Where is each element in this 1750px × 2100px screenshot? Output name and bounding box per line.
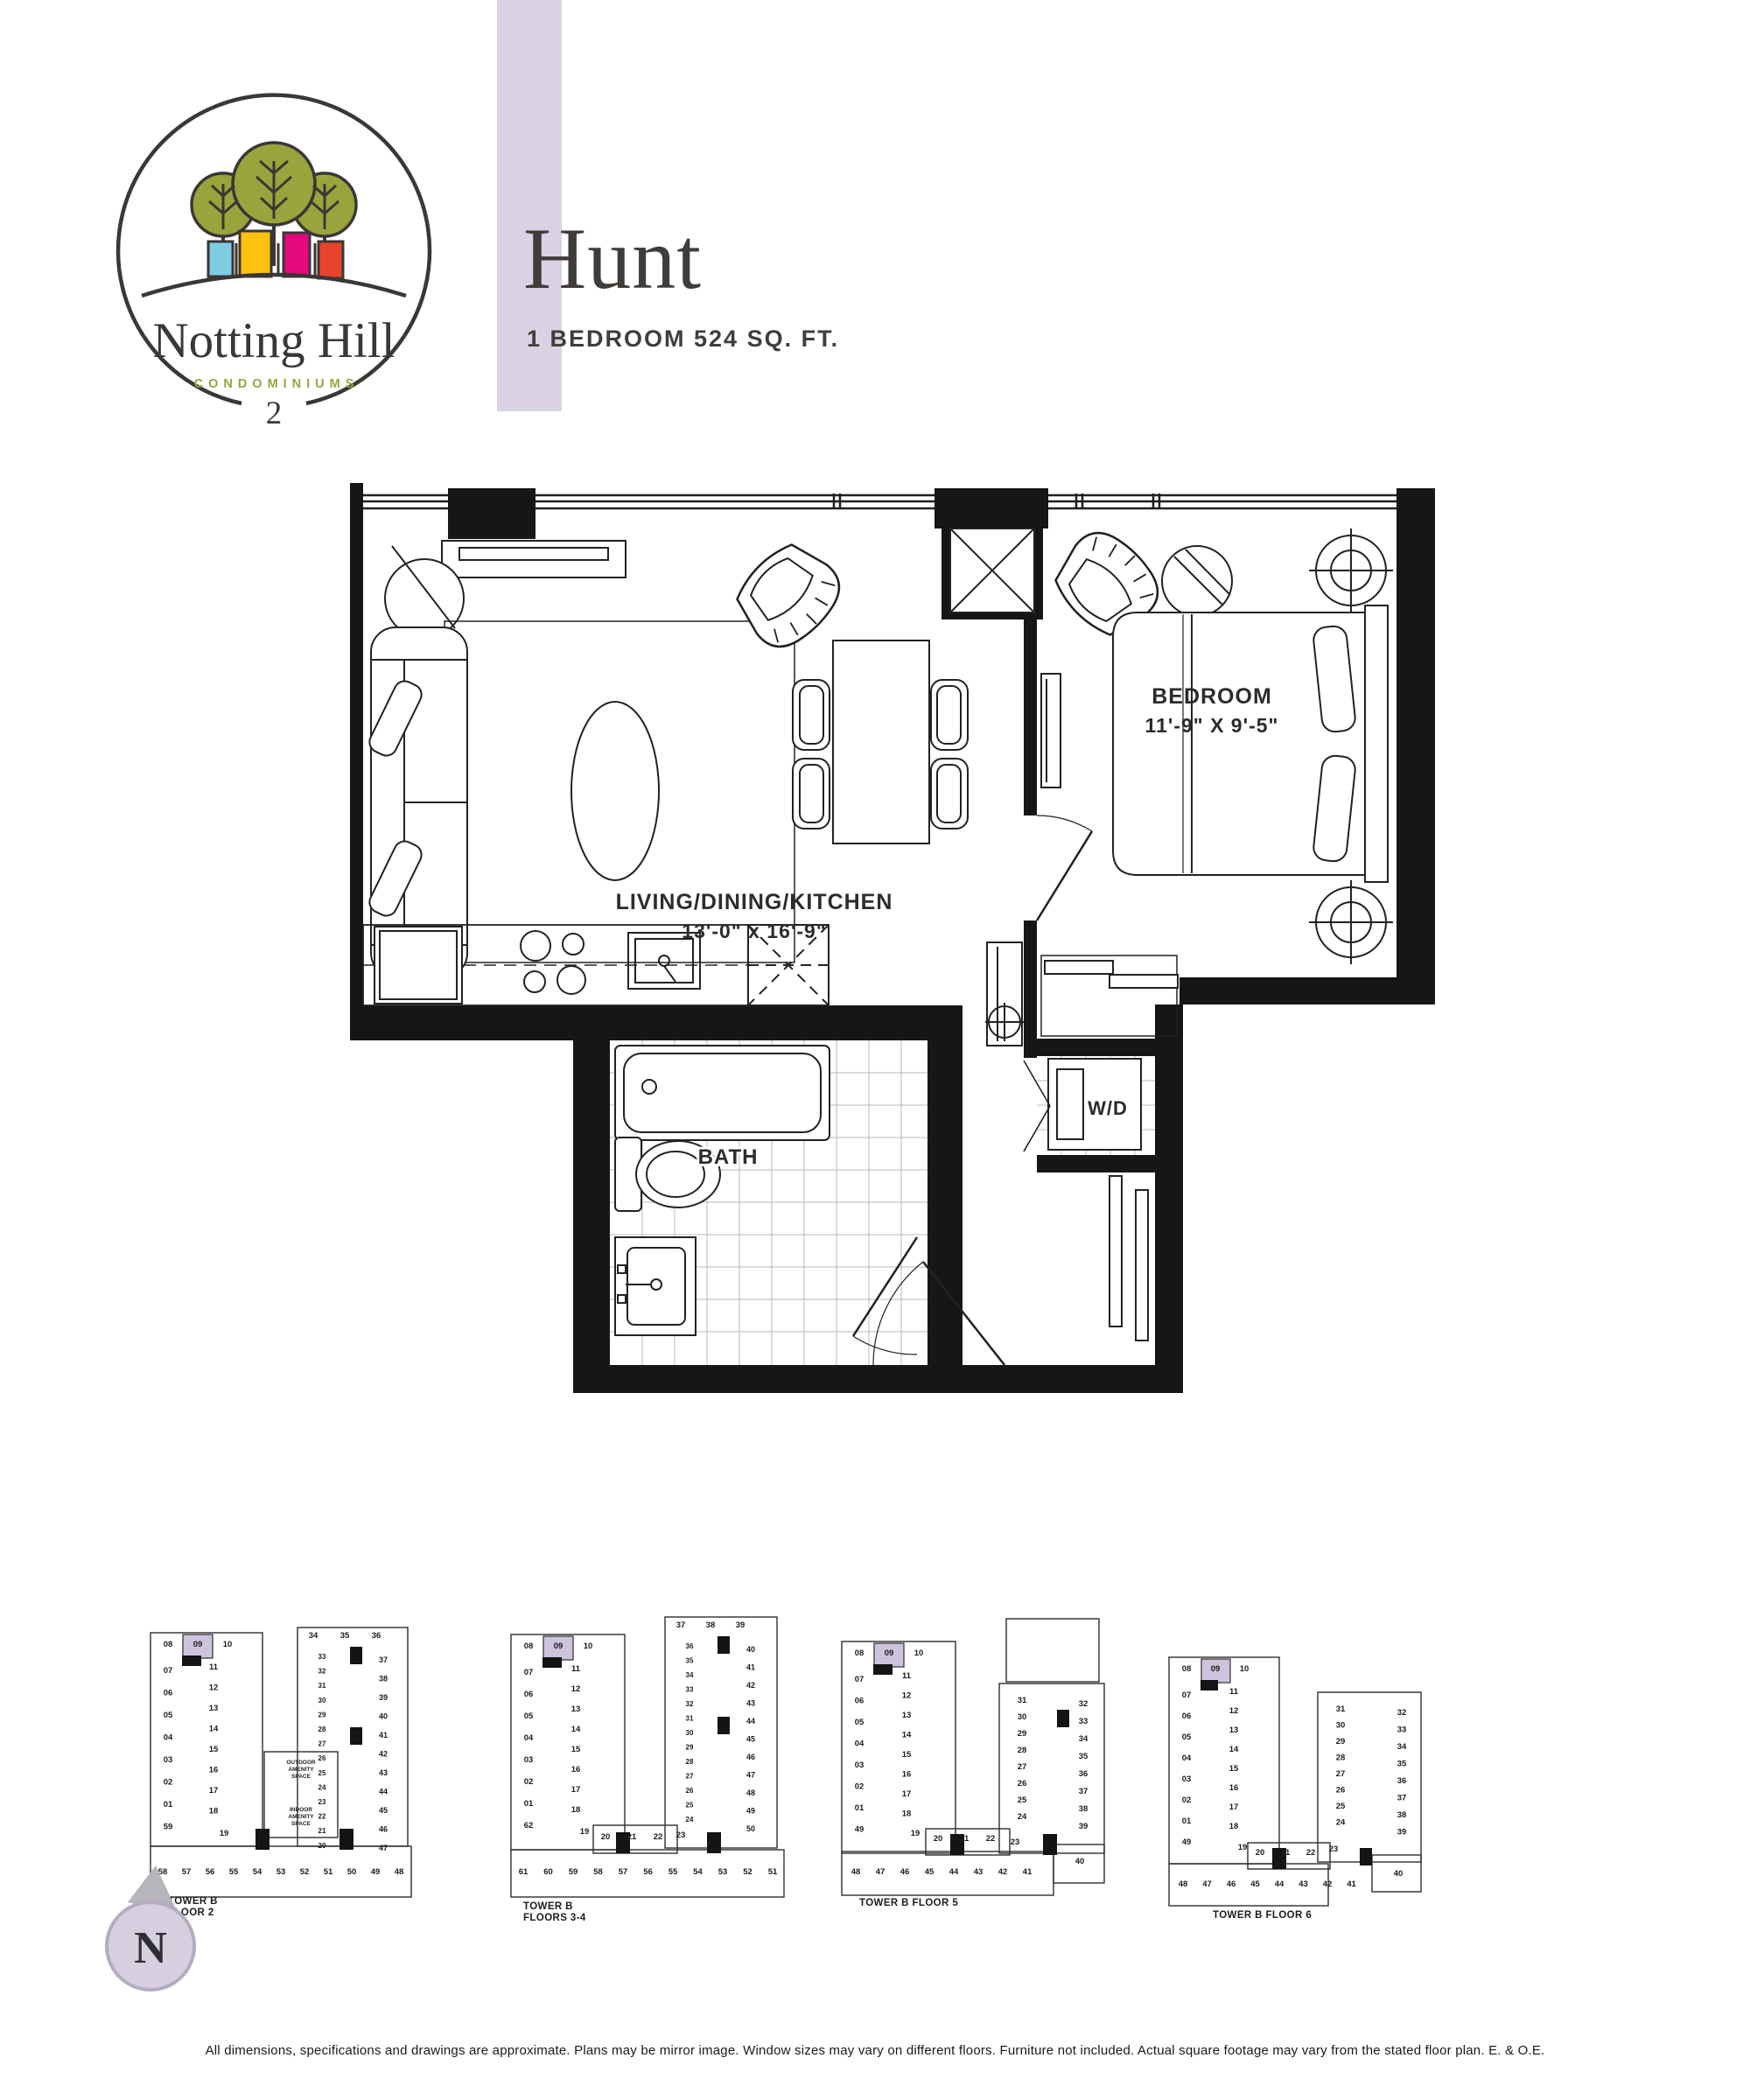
unit-number: 31 [1018, 1696, 1027, 1705]
unit-number: 23 [318, 1798, 326, 1806]
page-subtitle: 1 BEDROOM 524 SQ. FT. [527, 325, 839, 353]
unit-number: 45 [379, 1806, 388, 1815]
unit-number: 54 [253, 1867, 262, 1877]
unit-number: 53 [718, 1867, 728, 1877]
unit-number: 16 [1229, 1783, 1239, 1793]
unit-number: 34 [1079, 1734, 1088, 1744]
keyplan-caption: TOWER B FLOOR 5 [859, 1898, 958, 1908]
keyplan-tower-b-floors-3-4: 0809100706050403020162111213141516171819… [497, 1615, 799, 1928]
unit-number: 05 [1182, 1732, 1192, 1742]
nightstand-bottom [1309, 880, 1393, 964]
unit-number: 20 [318, 1842, 326, 1850]
unit-number: 23 [1329, 1844, 1339, 1854]
unit-number: 13 [209, 1704, 219, 1713]
amenity-label: SPACE [291, 1821, 311, 1827]
nightstand-top [1309, 528, 1393, 612]
unit-number: 10 [914, 1648, 924, 1658]
unit-number: 39 [736, 1620, 745, 1630]
elevator-core [873, 1664, 892, 1675]
unit-number: 42 [379, 1750, 388, 1759]
wd-bifold-door [1024, 1060, 1050, 1151]
unit-number: 39 [1397, 1828, 1407, 1837]
unit-number: 29 [1336, 1737, 1346, 1746]
unit-number: 31 [1336, 1704, 1346, 1714]
unit-number: 20 [934, 1834, 943, 1844]
keyplan-caption: TOWER B FLOOR 6 [1213, 1910, 1312, 1921]
side-table [1162, 546, 1232, 616]
unit-number: 44 [746, 1717, 755, 1725]
disclaimer-text: All dimensions, specifications and drawi… [0, 2043, 1750, 2058]
unit-number: 29 [686, 1744, 694, 1752]
unit-number: 15 [1229, 1764, 1239, 1774]
unit-number: 27 [1018, 1762, 1027, 1772]
unit-number: 19 [1238, 1843, 1248, 1852]
unit-number: 37 [1397, 1794, 1407, 1803]
unit-number: 51 [768, 1867, 778, 1877]
unit-number: 48 [395, 1867, 404, 1877]
unit-number: 02 [1182, 1795, 1192, 1805]
unit-number: 08 [1182, 1664, 1192, 1674]
unit-number: 25 [1018, 1795, 1027, 1805]
unit-number: 16 [571, 1765, 581, 1774]
unit-number: 36 [1079, 1769, 1088, 1779]
unit-number: 50 [746, 1824, 755, 1833]
unit-number: 17 [571, 1785, 581, 1795]
tv-console [442, 541, 626, 577]
unit-number: 36 [372, 1631, 381, 1641]
north-arrow: N [94, 1862, 217, 1993]
amenity-label: SPACE [291, 1774, 311, 1780]
unit-number: 38 [1397, 1810, 1407, 1820]
unit-number: 22 [986, 1834, 996, 1844]
unit-number: 55 [229, 1867, 239, 1877]
dining-set [793, 640, 968, 843]
logo-hill-line [142, 275, 406, 296]
unit-number: 22 [1306, 1848, 1316, 1858]
unit-number: 29 [318, 1711, 326, 1718]
unit-number: 06 [164, 1689, 173, 1698]
fridge-icon [374, 927, 462, 1004]
unit-number: 28 [1018, 1746, 1027, 1755]
bedroom-door [1037, 815, 1092, 920]
logo-wordmark: Notting Hill [152, 313, 395, 368]
unit-number: 18 [571, 1805, 581, 1815]
unit-number: 29 [1018, 1729, 1027, 1739]
unit-number: 05 [164, 1711, 173, 1720]
unit-number: 05 [524, 1711, 534, 1721]
unit-number: 42 [1323, 1879, 1333, 1889]
unit-number: 11 [1229, 1687, 1239, 1697]
unit-number: 09 [885, 1648, 894, 1658]
unit-number: 11 [902, 1671, 912, 1681]
unit-number: 05 [855, 1718, 864, 1727]
north-label: N [134, 1923, 167, 1973]
amenity-label: AMENITY [288, 1814, 314, 1820]
unit-number: 16 [902, 1770, 912, 1780]
unit-number: 01 [855, 1803, 864, 1813]
unit-number: 04 [1182, 1753, 1192, 1763]
unit-number: 46 [1227, 1879, 1236, 1889]
unit-number: 35 [340, 1631, 350, 1641]
unit-number: 59 [164, 1823, 173, 1832]
unit-number: 56 [643, 1867, 653, 1877]
unit-number: 58 [593, 1867, 603, 1877]
unit-number: 04 [164, 1733, 173, 1743]
unit-number: 31 [686, 1715, 694, 1723]
unit-number: 25 [686, 1802, 694, 1809]
unit-number: 21 [1281, 1848, 1291, 1858]
unit-number: 01 [164, 1800, 173, 1809]
unit-number: 44 [949, 1867, 959, 1877]
unit-number: 54 [693, 1867, 703, 1877]
unit-number: 12 [571, 1684, 581, 1694]
bed [1113, 605, 1388, 882]
unit-number: 08 [855, 1648, 864, 1658]
keyplan-caption: TOWER B [523, 1901, 573, 1912]
unit-number: 35 [1397, 1760, 1407, 1769]
unit-number: 53 [276, 1867, 286, 1877]
unit-number: 01 [1182, 1816, 1192, 1826]
unit-number: 09 [1211, 1664, 1221, 1674]
unit-number: 52 [743, 1867, 752, 1877]
bedroom-dresser [1041, 674, 1060, 787]
bath-vanity [615, 1237, 696, 1335]
unit-number: 37 [676, 1620, 686, 1630]
unit-number: 52 [300, 1867, 310, 1877]
unit-number: 22 [654, 1832, 663, 1842]
unit-number: 10 [223, 1640, 233, 1649]
unit-number: 37 [379, 1655, 388, 1664]
unit-number: 28 [318, 1725, 326, 1733]
unit-number: 02 [164, 1778, 173, 1788]
unit-number: 61 [519, 1867, 528, 1877]
bedroom-label: BEDROOM [1151, 684, 1272, 709]
unit-number: 16 [209, 1766, 219, 1775]
unit-number: 59 [569, 1867, 578, 1877]
unit-number: 60 [543, 1867, 553, 1877]
unit-number: 06 [524, 1690, 534, 1699]
unit-number: 62 [524, 1821, 534, 1830]
unit-number: 43 [746, 1699, 755, 1708]
elevator-core [182, 1655, 201, 1666]
unit-number: 49 [1182, 1837, 1192, 1847]
unit-number: 49 [371, 1867, 381, 1877]
unit-number: 07 [855, 1675, 864, 1684]
unit-number: 18 [1229, 1822, 1239, 1831]
unit-number: 44 [379, 1788, 388, 1796]
unit-number: 37 [1079, 1787, 1088, 1796]
unit-number: 34 [309, 1631, 318, 1641]
unit-number: 28 [1336, 1753, 1346, 1763]
unit-number: 17 [1229, 1802, 1239, 1812]
unit-number: 06 [855, 1697, 864, 1706]
unit-number: 41 [1023, 1867, 1032, 1877]
unit-number: 30 [686, 1729, 694, 1737]
main-floorplan: LIVING/DINING/KITCHEN 13'-0" x 16'-9" [350, 483, 1435, 1397]
unit-number: 07 [164, 1666, 173, 1676]
unit-number: 26 [1018, 1779, 1027, 1788]
unit-number: 33 [318, 1653, 326, 1661]
unit-number: 35 [1079, 1752, 1088, 1761]
unit-number: 57 [619, 1867, 628, 1877]
unit-number: 40 [379, 1712, 388, 1721]
unit-number: 14 [571, 1725, 581, 1734]
unit-number: 09 [193, 1640, 203, 1649]
unit-number: 01 [524, 1799, 534, 1809]
elevator-core [1200, 1680, 1218, 1690]
unit-number: 46 [900, 1867, 910, 1877]
elevator-core [717, 1717, 730, 1734]
coffee-table [571, 702, 659, 880]
unit-number: 40 [1394, 1869, 1403, 1879]
logo-tower-number: 2 [266, 395, 283, 430]
unit-number: 28 [686, 1758, 694, 1766]
unit-number: 09 [554, 1641, 563, 1651]
bedroom-dims: 11'-9" X 9'-5" [1145, 714, 1279, 737]
unit-number: 10 [1240, 1664, 1249, 1674]
unit-number: 24 [1018, 1812, 1027, 1822]
unit-number: 08 [524, 1641, 534, 1651]
keyplan-outline [999, 1683, 1104, 1853]
amenity-label: INDOOR [290, 1807, 312, 1813]
amenity-label: OUTDOOR [286, 1760, 316, 1766]
unit-number: 41 [746, 1663, 755, 1672]
unit-number: 33 [1397, 1725, 1407, 1735]
unit-number: 49 [746, 1807, 755, 1816]
unit-number: 13 [902, 1711, 912, 1720]
unit-number: 12 [209, 1683, 219, 1693]
elevator-core [717, 1636, 730, 1654]
keyplan-caption: FLOORS 3-4 [523, 1913, 586, 1923]
logo-trees-icon [192, 143, 356, 236]
unit-number: 25 [1336, 1802, 1346, 1811]
unit-number: 26 [686, 1787, 694, 1795]
unit-number: 11 [571, 1664, 581, 1674]
unit-number: 31 [318, 1682, 326, 1690]
elevator-core [350, 1727, 362, 1745]
logo-subtext: CONDOMINIUMS [194, 377, 360, 391]
keyplan-outline [1006, 1619, 1099, 1682]
unit-number: 17 [902, 1789, 912, 1799]
unit-number: 03 [1182, 1774, 1192, 1784]
unit-number: 34 [1397, 1742, 1407, 1752]
unit-number: 33 [1079, 1717, 1088, 1726]
unit-number: 39 [1079, 1822, 1088, 1831]
unit-number: 43 [974, 1867, 983, 1877]
unit-number: 41 [1347, 1879, 1356, 1889]
unit-number: 04 [855, 1739, 864, 1749]
unit-number: 26 [1336, 1786, 1346, 1795]
unit-number: 27 [686, 1773, 694, 1781]
unit-number: 47 [1202, 1879, 1212, 1889]
unit-number: 22 [318, 1813, 326, 1821]
unit-number: 15 [571, 1745, 581, 1754]
unit-number: 50 [347, 1867, 357, 1877]
unit-number: 06 [1182, 1711, 1192, 1721]
elevator-core [255, 1829, 269, 1850]
unit-number: 12 [902, 1691, 912, 1701]
unit-number: 46 [746, 1753, 755, 1761]
keyplan-tower-b-floor-6: 0809100706050403020149111213141516171819… [1157, 1634, 1445, 1929]
unit-number: 24 [1336, 1818, 1346, 1828]
unit-number: 08 [164, 1640, 173, 1649]
elevator-core [542, 1657, 562, 1668]
elevator-core [1057, 1710, 1069, 1727]
unit-number: 44 [1275, 1879, 1284, 1889]
unit-number: 30 [318, 1697, 326, 1704]
hall-cabinet [985, 942, 1024, 1046]
duct-shaft [950, 528, 1034, 612]
unit-number: 48 [851, 1867, 861, 1877]
unit-number: 19 [580, 1827, 590, 1837]
unit-number: 24 [686, 1816, 694, 1823]
unit-number: 32 [1079, 1699, 1088, 1709]
unit-number: 14 [209, 1725, 219, 1734]
living-label: LIVING/DINING/KITCHEN [616, 890, 893, 914]
unit-number: 07 [1182, 1690, 1192, 1700]
unit-number: 51 [324, 1867, 333, 1877]
page-title: Hunt [523, 208, 702, 309]
unit-number: 45 [746, 1735, 755, 1744]
unit-number: 47 [746, 1771, 755, 1780]
unit-number: 19 [911, 1829, 920, 1838]
unit-number: 55 [668, 1867, 678, 1877]
unit-number: 14 [902, 1731, 912, 1740]
unit-number: 15 [209, 1745, 219, 1754]
unit-number: 27 [1336, 1769, 1346, 1779]
unit-number: 38 [1079, 1804, 1088, 1814]
unit-number: 39 [379, 1693, 388, 1702]
keyplan-svg: 0809100706050403020149111213141516171819… [1157, 1634, 1445, 1925]
unit-number: 20 [1256, 1848, 1265, 1858]
unit-number: 03 [855, 1760, 864, 1770]
amenity-label: AMENITY [288, 1767, 314, 1773]
unit-number: 11 [209, 1662, 219, 1672]
unit-number: 33 [686, 1686, 694, 1694]
unit-number: 27 [318, 1740, 326, 1748]
unit-number: 48 [746, 1788, 755, 1797]
bathtub [615, 1046, 829, 1140]
unit-number: 32 [686, 1700, 694, 1708]
unit-number: 13 [1229, 1725, 1239, 1735]
keyplan-svg: 0809100706050403020149111213141516171819… [828, 1615, 1130, 1913]
unit-number: 17 [209, 1786, 219, 1795]
unit-number: 48 [1179, 1879, 1188, 1889]
unit-number: 21 [960, 1834, 969, 1844]
unit-number: 34 [686, 1671, 694, 1679]
unit-number: 24 [318, 1783, 326, 1791]
elevator-core [350, 1647, 362, 1664]
unit-number: 21 [318, 1827, 326, 1835]
unit-number: 42 [998, 1867, 1008, 1877]
unit-number: 40 [746, 1645, 755, 1654]
wd-label: W/D [1088, 1097, 1128, 1119]
elevator-core [707, 1832, 721, 1853]
unit-number: 36 [686, 1642, 694, 1650]
notting-hill-logo: Notting Hill CONDOMINIUMS 2 [103, 80, 444, 430]
unit-number: 23 [676, 1830, 686, 1840]
elevator-core [339, 1829, 353, 1850]
unit-number: 26 [318, 1754, 326, 1762]
unit-number: 45 [925, 1867, 934, 1877]
unit-number: 47 [379, 1844, 388, 1852]
unit-number: 30 [1336, 1721, 1346, 1731]
unit-number: 43 [379, 1768, 388, 1777]
unit-number: 04 [524, 1733, 534, 1743]
unit-number: 38 [706, 1620, 716, 1630]
unit-number: 40 [1075, 1857, 1085, 1866]
unit-number: 03 [524, 1755, 534, 1765]
unit-number: 15 [902, 1750, 912, 1760]
unit-number: 46 [379, 1825, 388, 1834]
unit-number: 20 [601, 1832, 611, 1842]
unit-number: 49 [855, 1825, 864, 1835]
unit-number: 03 [164, 1755, 173, 1765]
unit-number: 45 [1250, 1879, 1260, 1889]
unit-number: 10 [584, 1641, 593, 1651]
unit-number: 43 [1298, 1879, 1308, 1889]
entry-closet [1109, 1176, 1148, 1340]
unit-number: 41 [379, 1731, 388, 1739]
elevator-core [1043, 1834, 1057, 1855]
unit-number: 42 [746, 1681, 755, 1690]
unit-number: 23 [1011, 1837, 1020, 1847]
unit-number: 32 [318, 1668, 326, 1676]
unit-number: 32 [1397, 1708, 1407, 1718]
unit-number: 12 [1229, 1706, 1239, 1716]
unit-number: 07 [524, 1668, 534, 1677]
floorplan-page: Notting Hill CONDOMINIUMS 2 Hunt 1 BEDRO… [0, 0, 1750, 2100]
unit-number: 18 [209, 1807, 219, 1816]
unit-number: 19 [220, 1829, 229, 1838]
unit-number: 02 [524, 1777, 534, 1787]
unit-number: 18 [902, 1809, 912, 1819]
unit-number: 25 [318, 1769, 326, 1777]
unit-number: 36 [1397, 1776, 1407, 1786]
unit-number: 30 [1018, 1712, 1027, 1722]
unit-number: 14 [1229, 1745, 1239, 1754]
keyplan-svg: 0809100706050403020162111213141516171819… [497, 1615, 799, 1923]
keyplan-outline [842, 1851, 1053, 1895]
unit-number: 02 [855, 1782, 864, 1792]
unit-number: 47 [876, 1867, 885, 1877]
unit-number: 21 [627, 1832, 637, 1842]
keyplan-tower-b-floor-5: 0809100706050403020149111213141516171819… [828, 1615, 1130, 1917]
living-dims: 13'-0" x 16'-9" [682, 920, 826, 942]
unit-number: 35 [686, 1657, 694, 1665]
bath-door [853, 1237, 917, 1354]
unit-number: 38 [379, 1675, 388, 1683]
bath-label: BATH [698, 1145, 759, 1169]
unit-number: 13 [571, 1704, 581, 1714]
elevator-core [1360, 1848, 1372, 1865]
